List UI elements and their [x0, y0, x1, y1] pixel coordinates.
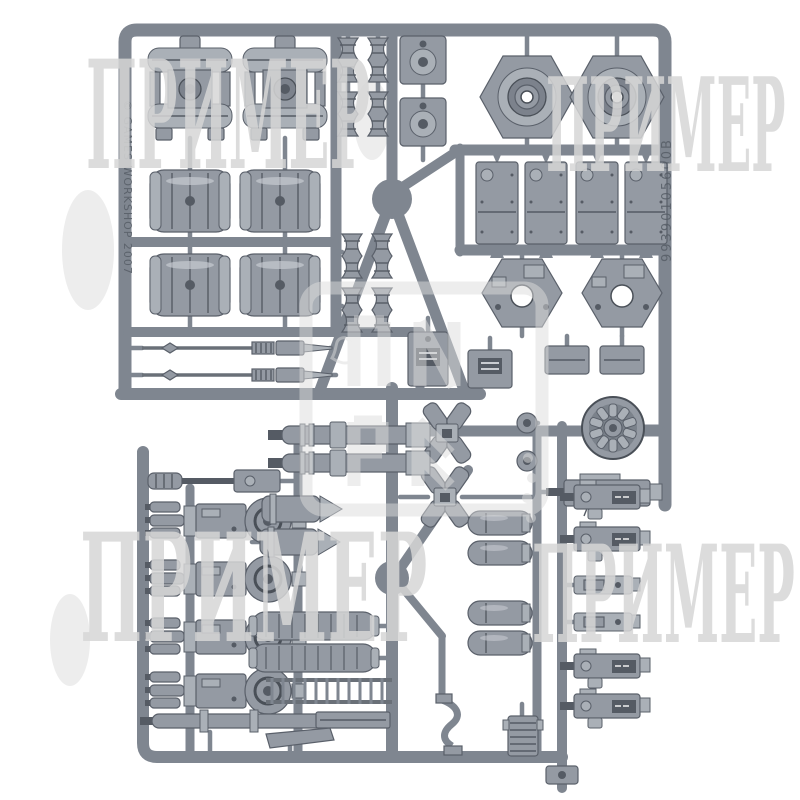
- vented-hatch: [408, 332, 448, 386]
- shell-round: [260, 527, 340, 557]
- radio-antenna: [142, 341, 332, 355]
- vented-hatch: [468, 350, 512, 388]
- lamp-housing: [400, 98, 446, 146]
- copyright-text: © GAMES WORKSHOP 2007: [121, 100, 134, 275]
- roller-drum: [150, 254, 230, 316]
- small-panel: [600, 346, 644, 374]
- radio-antenna: [142, 368, 332, 382]
- multibarrel-weapon: [145, 556, 306, 602]
- shell-round: [262, 494, 342, 524]
- heavy-bolter: [560, 689, 650, 728]
- fuel-bomb: [468, 511, 532, 535]
- gun-barrel: [140, 710, 346, 732]
- fuel-bomb: [468, 541, 532, 565]
- hex-hatch-cupola: [480, 56, 574, 138]
- fuel-bomb: [468, 631, 532, 655]
- armor-plate: [476, 148, 518, 258]
- lascannon-barrel: [268, 450, 430, 476]
- hex-hatch-cupola: [570, 56, 664, 138]
- armor-plate: [525, 148, 567, 258]
- hex-base-plate: [582, 259, 662, 327]
- exhaust-muffler: [249, 644, 379, 672]
- lasgun: [574, 576, 640, 594]
- autocannon: [148, 470, 280, 492]
- heavy-bolter: [560, 649, 650, 688]
- lamp-housing: [400, 36, 446, 84]
- small-panel: [545, 346, 589, 374]
- roller-drum: [240, 254, 320, 316]
- roller-drum: [150, 170, 230, 232]
- fuel-bomb: [468, 601, 532, 625]
- road-wheel: [582, 397, 644, 459]
- heavy-bolter: [560, 522, 650, 561]
- roller-drum: [240, 170, 320, 232]
- part-code-text: 99390105600B: [660, 138, 675, 262]
- radiator-grille: [503, 716, 543, 756]
- sprue-product-photo: © GAMES WORKSHOP 2007 99390105600B ПРИМЕ…: [0, 0, 800, 800]
- armor-plate: [576, 148, 618, 258]
- track-assembly: [148, 36, 232, 140]
- exhaust-muffler: [249, 612, 379, 640]
- stowage-plate: [316, 712, 390, 728]
- sprue-illustration: © GAMES WORKSHOP 2007 99390105600B: [0, 0, 800, 800]
- lasgun: [574, 613, 640, 631]
- lascannon-barrel: [268, 422, 430, 448]
- s-bracket: [436, 694, 462, 755]
- small-bracket: [546, 766, 578, 784]
- hex-base-plate: [482, 259, 562, 327]
- track-assembly: [243, 36, 327, 140]
